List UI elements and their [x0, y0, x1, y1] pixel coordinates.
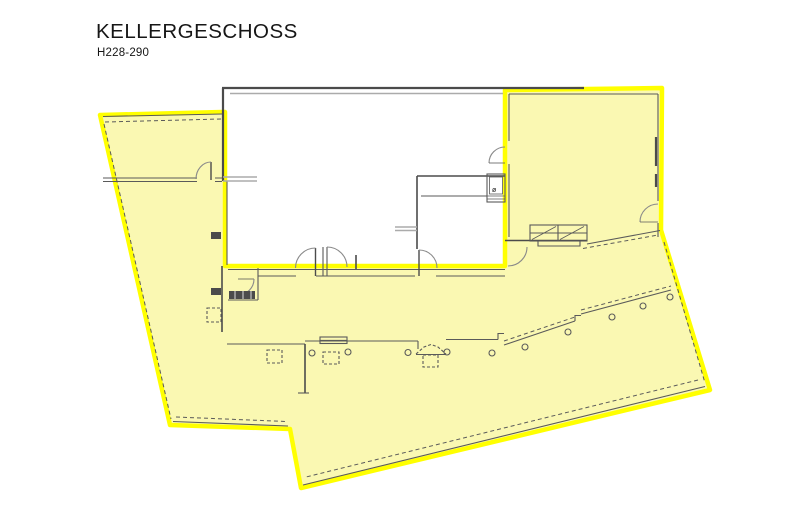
floorplan-svg: ø: [0, 0, 800, 520]
main-room-area: [226, 88, 506, 266]
wall-pilaster: [211, 288, 221, 295]
floorplan-page: KELLERGESCHOSS H228-290: [0, 0, 800, 520]
building-highlight: [100, 88, 710, 488]
elevator-symbol: ø: [492, 187, 497, 194]
wall-pilaster: [211, 232, 221, 239]
